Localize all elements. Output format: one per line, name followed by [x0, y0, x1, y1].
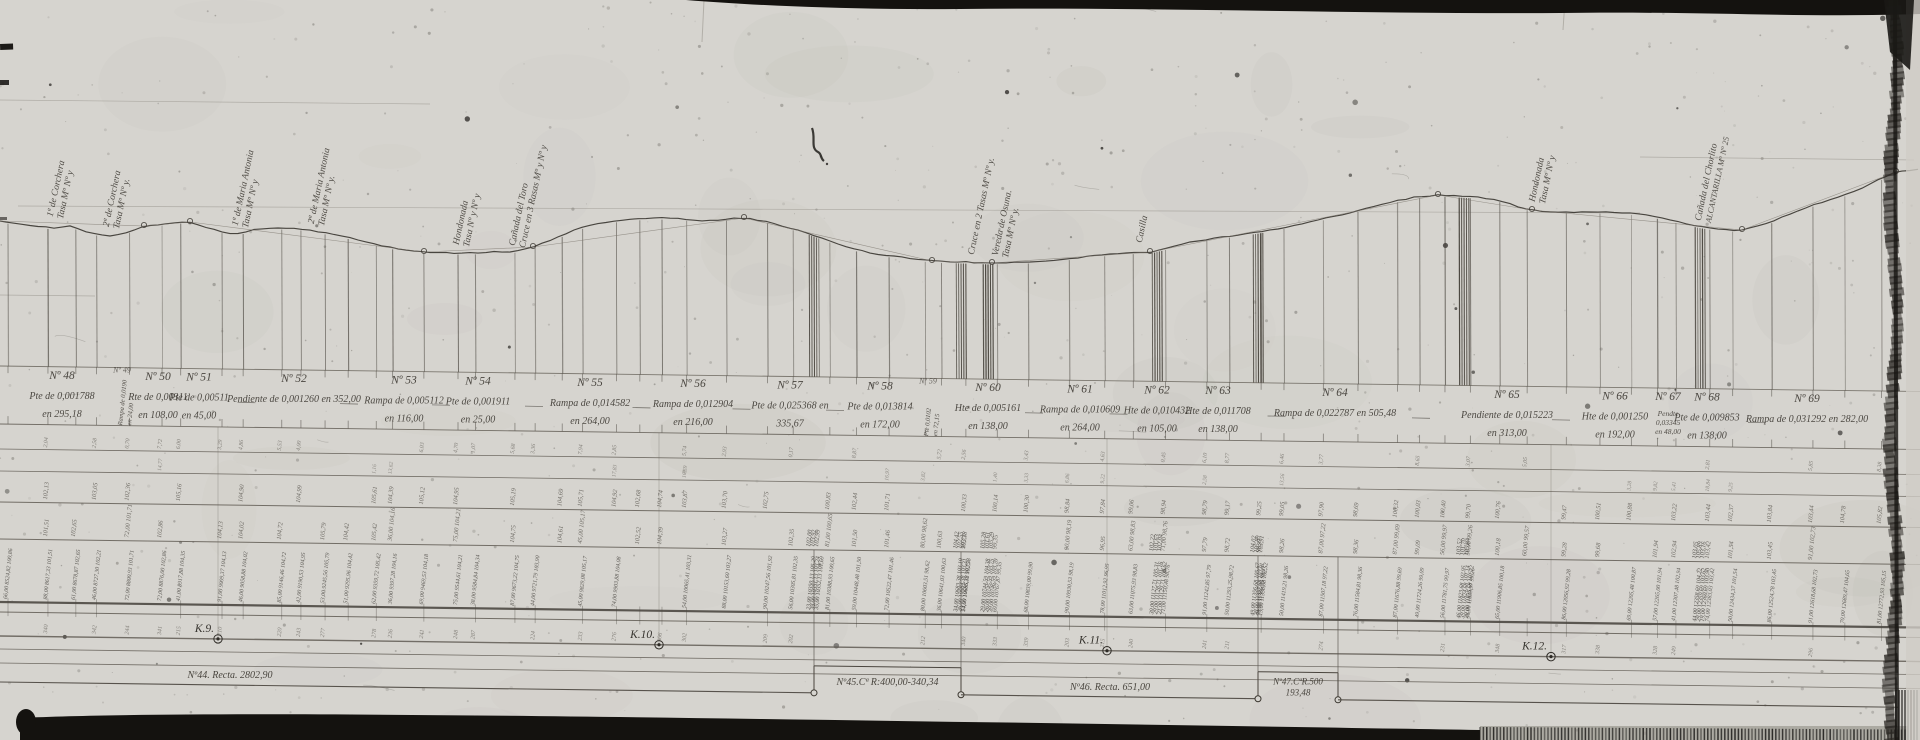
svg-text:274: 274 — [1317, 641, 1325, 651]
svg-text:0,45: 0,45 — [1160, 452, 1168, 463]
svg-text:317: 317 — [1561, 643, 1568, 655]
svg-text:9,82: 9,82 — [1652, 481, 1659, 491]
svg-text:5,72: 5,72 — [937, 449, 944, 460]
svg-text:en 295,18: en 295,18 — [42, 409, 81, 420]
svg-text:4,63: 4,63 — [1099, 451, 1107, 462]
svg-text:220: 220 — [277, 627, 284, 637]
svg-text:Hte de 0,011708: Hte de 0,011708 — [1184, 406, 1251, 417]
svg-text:Rampa de 0,031292 en 282,00: Rampa de 0,031292 en 282,00 — [1745, 414, 1868, 425]
svg-text:en 105,00: en 105,00 — [1137, 423, 1176, 434]
svg-text:Pendiente de 0,015223: Pendiente de 0,015223 — [1460, 410, 1553, 421]
svg-text:5,85: 5,85 — [1808, 461, 1815, 472]
svg-text:18,84: 18,84 — [1704, 479, 1712, 492]
svg-text:6,03: 6,03 — [419, 442, 426, 453]
svg-text:Nº 68: Nº 68 — [1693, 392, 1720, 404]
svg-text:211: 211 — [1224, 640, 1231, 649]
svg-text:Nº 61: Nº 61 — [1066, 383, 1093, 395]
svg-text:Rampa de 0,010609: Rampa de 0,010609 — [1039, 404, 1120, 415]
svg-text:Nº 65: Nº 65 — [1493, 389, 1520, 401]
profile-drawing: 1ª de CorcheraTasa Mº Nº y2ª de Corchera… — [0, 0, 1920, 740]
svg-text:en 313,00: en 313,00 — [1487, 428, 1526, 439]
svg-text:202: 202 — [788, 634, 795, 644]
svg-text:5,41: 5,41 — [1670, 481, 1678, 492]
svg-text:203: 203 — [1064, 638, 1071, 648]
svg-text:Pte de 0,00511: Pte de 0,00511 — [168, 393, 229, 404]
svg-text:7,72: 7,72 — [157, 439, 164, 450]
svg-text:7,94: 7,94 — [577, 444, 585, 455]
svg-text:en 216,00: en 216,00 — [673, 417, 712, 428]
svg-text:1,16: 1,16 — [371, 464, 378, 474]
svg-text:6,00: 6,00 — [176, 439, 183, 450]
svg-text:en 116,00: en 116,00 — [385, 413, 424, 424]
svg-text:K.10.: K.10. — [629, 629, 655, 641]
svg-text:3,07: 3,07 — [1465, 455, 1472, 468]
svg-text:5,05: 5,05 — [1522, 457, 1529, 468]
svg-text:Hte de 0,005161: Hte de 0,005161 — [954, 403, 1021, 414]
svg-text:Nº46. Recta. 651,00: Nº46. Recta. 651,00 — [1069, 682, 1150, 693]
svg-text:Rampa de 0,012904: Rampa de 0,012904 — [652, 399, 733, 410]
svg-text:287: 287 — [470, 629, 477, 640]
svg-text:K.12.: K.12. — [1521, 641, 1547, 653]
svg-text:2,58: 2,58 — [1202, 475, 1209, 485]
svg-text:en 25,00: en 25,00 — [461, 414, 495, 425]
svg-text:Nº 52: Nº 52 — [280, 373, 307, 385]
svg-text:240: 240 — [1127, 639, 1135, 649]
svg-text:K.11.: K.11. — [1078, 635, 1103, 647]
svg-text:Nº 56: Nº 56 — [679, 378, 706, 390]
svg-text:en 138,00: en 138,00 — [968, 421, 1007, 432]
svg-text:231: 231 — [1440, 643, 1447, 653]
svg-text:en 192,00: en 192,00 — [1595, 429, 1634, 440]
svg-text:Nº45.Cª R:400,00-340,34: Nº45.Cª R:400,00-340,34 — [836, 677, 939, 688]
svg-text:2,81: 2,81 — [1705, 459, 1712, 470]
svg-text:Hte de 0,001250: Hte de 0,001250 — [1581, 411, 1648, 422]
svg-text:2,85: 2,85 — [611, 445, 618, 456]
svg-text:2,93: 2,93 — [722, 446, 729, 457]
svg-text:en 48,00: en 48,00 — [1655, 427, 1681, 436]
svg-text:Nº 63: Nº 63 — [1204, 385, 1231, 397]
svg-text:2,56: 2,56 — [961, 449, 968, 460]
svg-text:K.9.: K.9. — [194, 623, 214, 635]
svg-text:277: 277 — [320, 627, 327, 638]
svg-text:Nº 69: Nº 69 — [1793, 393, 1820, 405]
svg-text:306: 306 — [657, 632, 664, 643]
svg-text:328: 328 — [1652, 646, 1659, 657]
svg-text:Pte de 0,001788: Pte de 0,001788 — [28, 391, 94, 402]
svg-text:5,74: 5,74 — [681, 445, 689, 456]
svg-text:96,95: 96,95 — [1099, 536, 1107, 551]
fold-line — [1895, 0, 1897, 740]
svg-text:296: 296 — [1808, 648, 1815, 658]
svg-text:Rampa de 0,005112: Rampa de 0,005112 — [363, 395, 444, 406]
svg-text:278: 278 — [371, 629, 378, 639]
svg-text:302: 302 — [682, 633, 689, 644]
svg-text:340: 340 — [42, 624, 50, 635]
svg-text:3,82: 3,82 — [920, 471, 927, 482]
svg-text:3,36: 3,36 — [530, 444, 537, 456]
svg-text:Nº 51: Nº 51 — [185, 372, 212, 384]
svg-text:Nº 59: Nº 59 — [918, 376, 937, 385]
svg-text:en 138,00: en 138,00 — [1687, 431, 1726, 442]
svg-text:241: 241 — [1201, 640, 1209, 650]
svg-text:341: 341 — [156, 626, 164, 637]
svg-text:8,77: 8,77 — [1224, 452, 1231, 464]
svg-text:3,29: 3,29 — [217, 439, 224, 451]
scanned-profile-sheet: 1ª de CorcheraTasa Mº Nº y2ª de Corchera… — [0, 0, 1920, 740]
svg-text:Pte de 0,025368 en: Pte de 0,025368 en — [750, 401, 828, 412]
svg-text:6,86: 6,86 — [1064, 473, 1071, 483]
svg-text:14,77: 14,77 — [156, 458, 164, 471]
svg-text:276: 276 — [611, 632, 618, 642]
svg-text:244: 244 — [124, 625, 132, 635]
svg-text:99,05: 99,05 — [1278, 501, 1286, 516]
svg-text:8,87: 8,87 — [852, 447, 859, 459]
svg-text:2,04: 2,04 — [42, 437, 50, 448]
svg-text:Rampa de 0,022787 en 505,48: Rampa de 0,022787 en 505,48 — [1273, 408, 1396, 419]
svg-text:Nº 55: Nº 55 — [576, 377, 603, 389]
svg-text:3,43: 3,43 — [1022, 450, 1030, 462]
svg-text:3,28: 3,28 — [1626, 480, 1633, 491]
svg-text:Pte de 0,009853: Pte de 0,009853 — [1673, 413, 1739, 424]
svg-text:99,25: 99,25 — [1255, 501, 1263, 516]
svg-text:212: 212 — [920, 636, 927, 646]
svg-text:Nº 54: Nº 54 — [464, 375, 491, 387]
svg-text:348: 348 — [1494, 643, 1502, 654]
svg-text:5,53: 5,53 — [277, 440, 284, 451]
adjacent-sheet-sliver — [1906, 0, 1920, 740]
svg-text:233: 233 — [578, 631, 585, 641]
svg-text:Hte de 0,010432: Hte de 0,010432 — [1123, 405, 1190, 416]
svg-text:en 264,00: en 264,00 — [570, 416, 609, 427]
svg-text:en 172,00: en 172,00 — [860, 420, 899, 431]
svg-text:215: 215 — [176, 626, 183, 636]
svg-text:3,77: 3,77 — [1318, 453, 1325, 466]
svg-text:Nº 60: Nº 60 — [974, 382, 1001, 394]
svg-text:339: 339 — [1023, 637, 1030, 648]
svg-text:333: 333 — [992, 637, 999, 648]
svg-text:Nº 66: Nº 66 — [1601, 390, 1628, 402]
svg-text:6,10: 6,10 — [1202, 452, 1209, 463]
svg-text:193,48: 193,48 — [1286, 687, 1311, 697]
svg-text:2,58: 2,58 — [92, 438, 99, 449]
svg-text:Nº47.CªR.500: Nº47.CªR.500 — [1272, 676, 1323, 686]
svg-text:335,67: 335,67 — [775, 419, 805, 430]
svg-text:1,07: 1,07 — [470, 442, 477, 454]
svg-text:en 108,00: en 108,00 — [138, 410, 177, 421]
svg-text:5,68: 5,68 — [510, 443, 517, 454]
svg-text:4,86: 4,86 — [237, 440, 245, 451]
svg-text:241: 241 — [418, 629, 426, 639]
svg-text:Nº 62: Nº 62 — [1143, 384, 1170, 396]
svg-text:0,70: 0,70 — [125, 438, 132, 449]
svg-text:342: 342 — [90, 625, 98, 636]
svg-text:4,00: 4,00 — [295, 440, 303, 451]
svg-text:4,70: 4,70 — [452, 442, 460, 453]
svg-text:249: 249 — [1670, 646, 1678, 656]
svg-text:Nº 67: Nº 67 — [1654, 391, 1682, 403]
svg-text:340: 340 — [960, 636, 968, 647]
svg-text:Nº 49: Nº 49 — [112, 366, 131, 375]
svg-text:en 45,00: en 45,00 — [182, 411, 216, 422]
svg-text:209: 209 — [763, 634, 770, 644]
svg-text:236: 236 — [388, 629, 395, 639]
svg-text:338: 338 — [1595, 645, 1602, 656]
svg-text:Nº 48: Nº 48 — [48, 370, 75, 382]
svg-text:Nº 58: Nº 58 — [866, 381, 893, 393]
svg-text:Nº 64: Nº 64 — [1321, 387, 1348, 399]
svg-text:3,33: 3,33 — [1023, 472, 1030, 483]
svg-text:1,40: 1,40 — [991, 472, 999, 483]
svg-text:248: 248 — [452, 630, 460, 640]
svg-text:8,65: 8,65 — [1415, 455, 1422, 466]
svg-text:Pte de 0,013814: Pte de 0,013814 — [846, 402, 912, 413]
svg-text:0,17: 0,17 — [788, 446, 795, 458]
svg-text:243: 243 — [295, 628, 303, 638]
svg-text:Nº 53: Nº 53 — [390, 374, 417, 386]
svg-text:Nº44. Recta. 2802,90: Nº44. Recta. 2802,90 — [186, 670, 272, 681]
svg-text:Rampa de 0,014582: Rampa de 0,014582 — [549, 398, 630, 409]
svg-text:Nº 57: Nº 57 — [776, 380, 804, 392]
svg-text:9,25: 9,25 — [1728, 482, 1735, 492]
svg-text:Pte de 0,001911: Pte de 0,001911 — [445, 396, 511, 407]
svg-text:6,46: 6,46 — [1278, 453, 1286, 464]
svg-text:9,22: 9,22 — [1100, 473, 1107, 483]
svg-text:Nº 50: Nº 50 — [144, 371, 171, 383]
svg-text:8,38: 8,38 — [1877, 461, 1884, 472]
svg-text:224: 224 — [529, 631, 537, 641]
svg-text:en 138,00: en 138,00 — [1198, 424, 1237, 435]
svg-text:en 264,00: en 264,00 — [1060, 422, 1099, 433]
